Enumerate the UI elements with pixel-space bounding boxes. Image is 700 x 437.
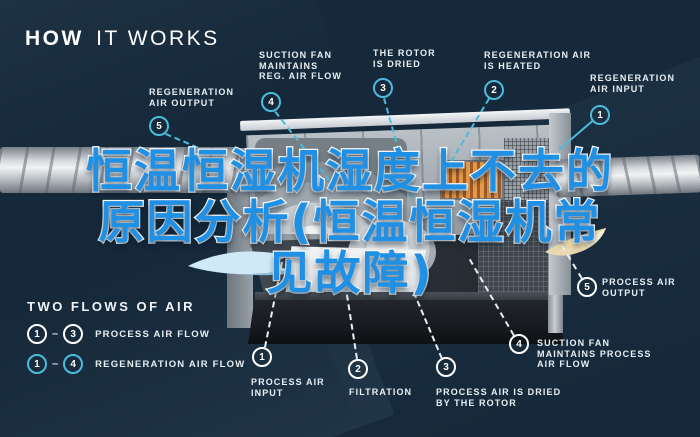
callout-circle-reg-2: 2 xyxy=(484,80,504,100)
callout-label-proc-dried: PROCESS AIR IS DRIED BY THE ROTOR xyxy=(436,387,561,408)
callout-circle-proc-2: 2 xyxy=(348,359,368,379)
page-title: HOW IT WORKS xyxy=(25,27,220,51)
callout-circle-reg-5: 5 xyxy=(149,116,169,136)
callout-label-line: REGENERATION xyxy=(590,73,675,83)
callout-circle-reg-3: 3 xyxy=(373,78,393,98)
callout-label-line: SUCTION FAN xyxy=(537,338,610,348)
callout-label-line: MAINTAINS xyxy=(259,61,318,71)
callout-circle-reg-4: 4 xyxy=(261,92,281,112)
callout-label-line: AIR FLOW xyxy=(537,359,590,369)
callout-label-line: AIR OUTPUT xyxy=(149,98,215,108)
callout-circle-proc-1: 1 xyxy=(252,347,272,367)
callout-label-line: IS DRIED xyxy=(373,59,421,69)
callout-label-proc-input: PROCESS AIR INPUT xyxy=(251,377,325,398)
callout-label-line: PROCESS AIR xyxy=(251,377,325,387)
callout-label-line: REGENERATION AIR xyxy=(484,50,591,60)
legend-label-process: PROCESS AIR FLOW xyxy=(95,329,210,340)
callout-label-reg-suction-fan: SUCTION FAN MAINTAINS REG. AIR FLOW xyxy=(259,50,342,82)
legend-label-regeneration: REGENERATION AIR FLOW xyxy=(95,359,245,370)
legend-dash: – xyxy=(52,328,58,340)
callout-label-line: IS HEATED xyxy=(484,61,541,71)
callout-label-line: REGENERATION xyxy=(149,87,234,97)
overlay-title-line-2: 原因分析(恒温恒湿机常 xyxy=(0,197,700,247)
overlay-title-line-1: 恒温恒湿机湿度上不去的 xyxy=(0,146,700,196)
callout-label-line: INPUT xyxy=(251,388,284,398)
legend-circle-4: 4 xyxy=(63,354,83,374)
legend-circle-3: 3 xyxy=(63,324,83,344)
page-title-bold: HOW xyxy=(25,27,84,50)
callout-label-line: MAINTAINS PROCESS xyxy=(537,349,652,359)
legend-circle-1: 1 xyxy=(27,354,47,374)
callout-label-line: AIR INPUT xyxy=(590,84,645,94)
callout-label-line: THE ROTOR xyxy=(373,48,436,58)
callout-circle-proc-3: 3 xyxy=(436,357,456,377)
callout-label-line: REG. AIR FLOW xyxy=(259,71,342,81)
callout-label-reg-input: REGENERATION AIR INPUT xyxy=(590,73,675,94)
legend-circle-1: 1 xyxy=(27,324,47,344)
callout-label-filtration: FILTRATION xyxy=(349,387,412,398)
callout-label-proc-suction-fan: SUCTION FAN MAINTAINS PROCESS AIR FLOW xyxy=(537,338,652,370)
page-title-light: IT WORKS xyxy=(96,27,219,50)
overlay-title-line-3: 见故障) xyxy=(0,248,700,298)
callout-label-line: PROCESS AIR IS DRIED xyxy=(436,387,561,397)
callout-label-rotor-dried: THE ROTOR IS DRIED xyxy=(373,48,436,69)
callout-label-reg-output: REGENERATION AIR OUTPUT xyxy=(149,87,234,108)
callout-label-line: BY THE ROTOR xyxy=(436,398,517,408)
legend-row-process: 1 – 3 PROCESS AIR FLOW xyxy=(27,324,210,344)
legend-row-regeneration: 1 – 4 REGENERATION AIR FLOW xyxy=(27,354,245,374)
legend-dash: – xyxy=(52,358,58,370)
callout-label-line: FILTRATION xyxy=(349,387,412,397)
callout-label-line: SUCTION FAN xyxy=(259,50,332,60)
infographic-canvas: HOW IT WORKS REGENERATION AIR OUTPUT 5 S… xyxy=(0,0,700,437)
callout-circle-proc-4: 4 xyxy=(509,334,529,354)
callout-circle-reg-1: 1 xyxy=(590,105,610,125)
callout-label-reg-heated: REGENERATION AIR IS HEATED xyxy=(484,50,591,71)
legend-title: TWO FLOWS OF AIR xyxy=(27,299,195,314)
